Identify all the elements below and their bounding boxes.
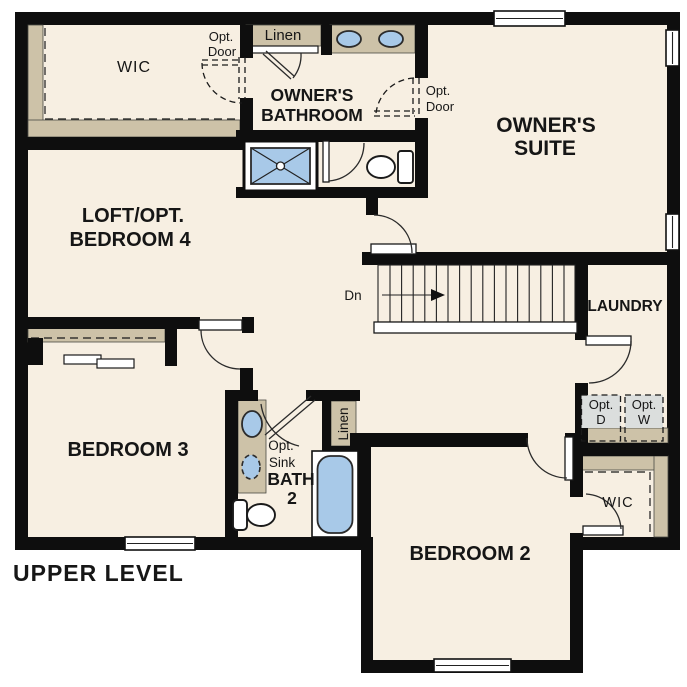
stairs-stringer <box>374 322 577 333</box>
bedroom3-label: BEDROOM 3 <box>67 439 188 461</box>
loft-label-line1: LOFT/OPT. <box>82 205 184 227</box>
stairs-dn-label: Dn <box>344 288 361 303</box>
wall-bedroom2-left <box>358 433 371 550</box>
bath2-label-line2: 2 <box>287 488 297 508</box>
laundry-door-leaf <box>586 336 631 345</box>
opt-sink-label-line2: Sink <box>269 455 296 470</box>
owner-sink-left <box>337 31 361 47</box>
linen-upper-shelf-front <box>249 46 318 53</box>
owners-bathroom-label-line2: BATHROOM <box>261 105 363 125</box>
bedroom2-door-leaf <box>565 437 573 480</box>
bedroom2-wic-door-leaf <box>583 526 623 535</box>
wall-wic-bath-upper <box>240 25 253 58</box>
linen-bath2-label: Linen <box>336 407 351 440</box>
bedroom3-door-leaf <box>199 320 242 330</box>
bathtub <box>318 456 353 533</box>
owner-sink-right <box>379 31 403 47</box>
wic-opt-door-label-line2: Door <box>208 44 237 59</box>
loft-label-line2: BEDROOM 4 <box>69 229 191 251</box>
bath2-toilet-tank <box>233 500 247 530</box>
owner-wic-label: WIC <box>117 59 151 76</box>
shower-drain <box>277 162 285 170</box>
suite-opt-door-label-line1: Opt. <box>426 83 451 98</box>
linen-upper-label: Linen <box>265 27 302 44</box>
wall-linen-right <box>321 25 332 55</box>
bedroom2-wic-label: WIC <box>602 495 633 511</box>
bath2-toilet-bowl <box>247 504 275 526</box>
wall-bedroom3-closet-right <box>165 317 177 366</box>
bedroom3-closet-bypass-door-2 <box>97 359 134 368</box>
opt-washer-label-line1: Opt. <box>632 397 657 412</box>
wall-bath2-top-east <box>306 390 360 401</box>
bedroom3-closet-shelf <box>28 328 165 342</box>
opt-dryer-label-line1: Opt. <box>589 397 614 412</box>
opt-washer-label-line2: W <box>638 412 651 427</box>
bedroom2-wic-shelf-right <box>654 456 668 537</box>
laundry-label: LAUNDRY <box>587 298 663 315</box>
bath2-label-line1: BATH <box>267 469 314 489</box>
owner-wic-shelf-bottom <box>28 120 240 137</box>
bath2-optional-sink <box>242 455 260 479</box>
wall-suite-entry-stub <box>366 193 378 215</box>
owners-suite-door-leaf <box>371 244 416 254</box>
wall-bedroom2-right-stub <box>570 533 583 550</box>
opt-dryer-label-line2: D <box>596 412 605 427</box>
opt-sink-label-line1: Opt. <box>268 438 294 453</box>
toilet-room-door-leaf <box>323 141 329 182</box>
wic-opt-door-label-line1: Opt. <box>209 29 234 44</box>
suite-opt-door-label-line2: Door <box>426 99 455 114</box>
bath2-sink <box>242 411 262 437</box>
bedroom3-closet-bypass-door-1 <box>64 355 101 364</box>
wall-bedroom3-door-stub <box>242 317 254 333</box>
wall-bedroom2-top <box>350 433 528 447</box>
floor-plan-drawing: WIC Opt. Door Linen OWNER'S BATHROOM Opt… <box>0 0 687 687</box>
owners-suite-label-line1: OWNER'S <box>496 114 596 137</box>
owners-suite-label-line2: SUITE <box>514 137 576 160</box>
plan-title: UPPER LEVEL <box>13 560 184 586</box>
owner-toilet-tank <box>398 151 413 183</box>
wall-wic-bottom <box>15 137 243 150</box>
bedroom2-label: BEDROOM 2 <box>409 543 530 565</box>
wall-bath2-linen-left <box>322 398 331 448</box>
owners-bathroom-label-line1: OWNER'S <box>271 85 354 105</box>
wall-suite-left-upper <box>415 25 428 78</box>
owner-toilet-bowl <box>367 156 395 178</box>
wall-bedroom3-closet-return <box>28 338 43 365</box>
floor-plan-page: WIC Opt. Door Linen OWNER'S BATHROOM Opt… <box>0 0 687 687</box>
